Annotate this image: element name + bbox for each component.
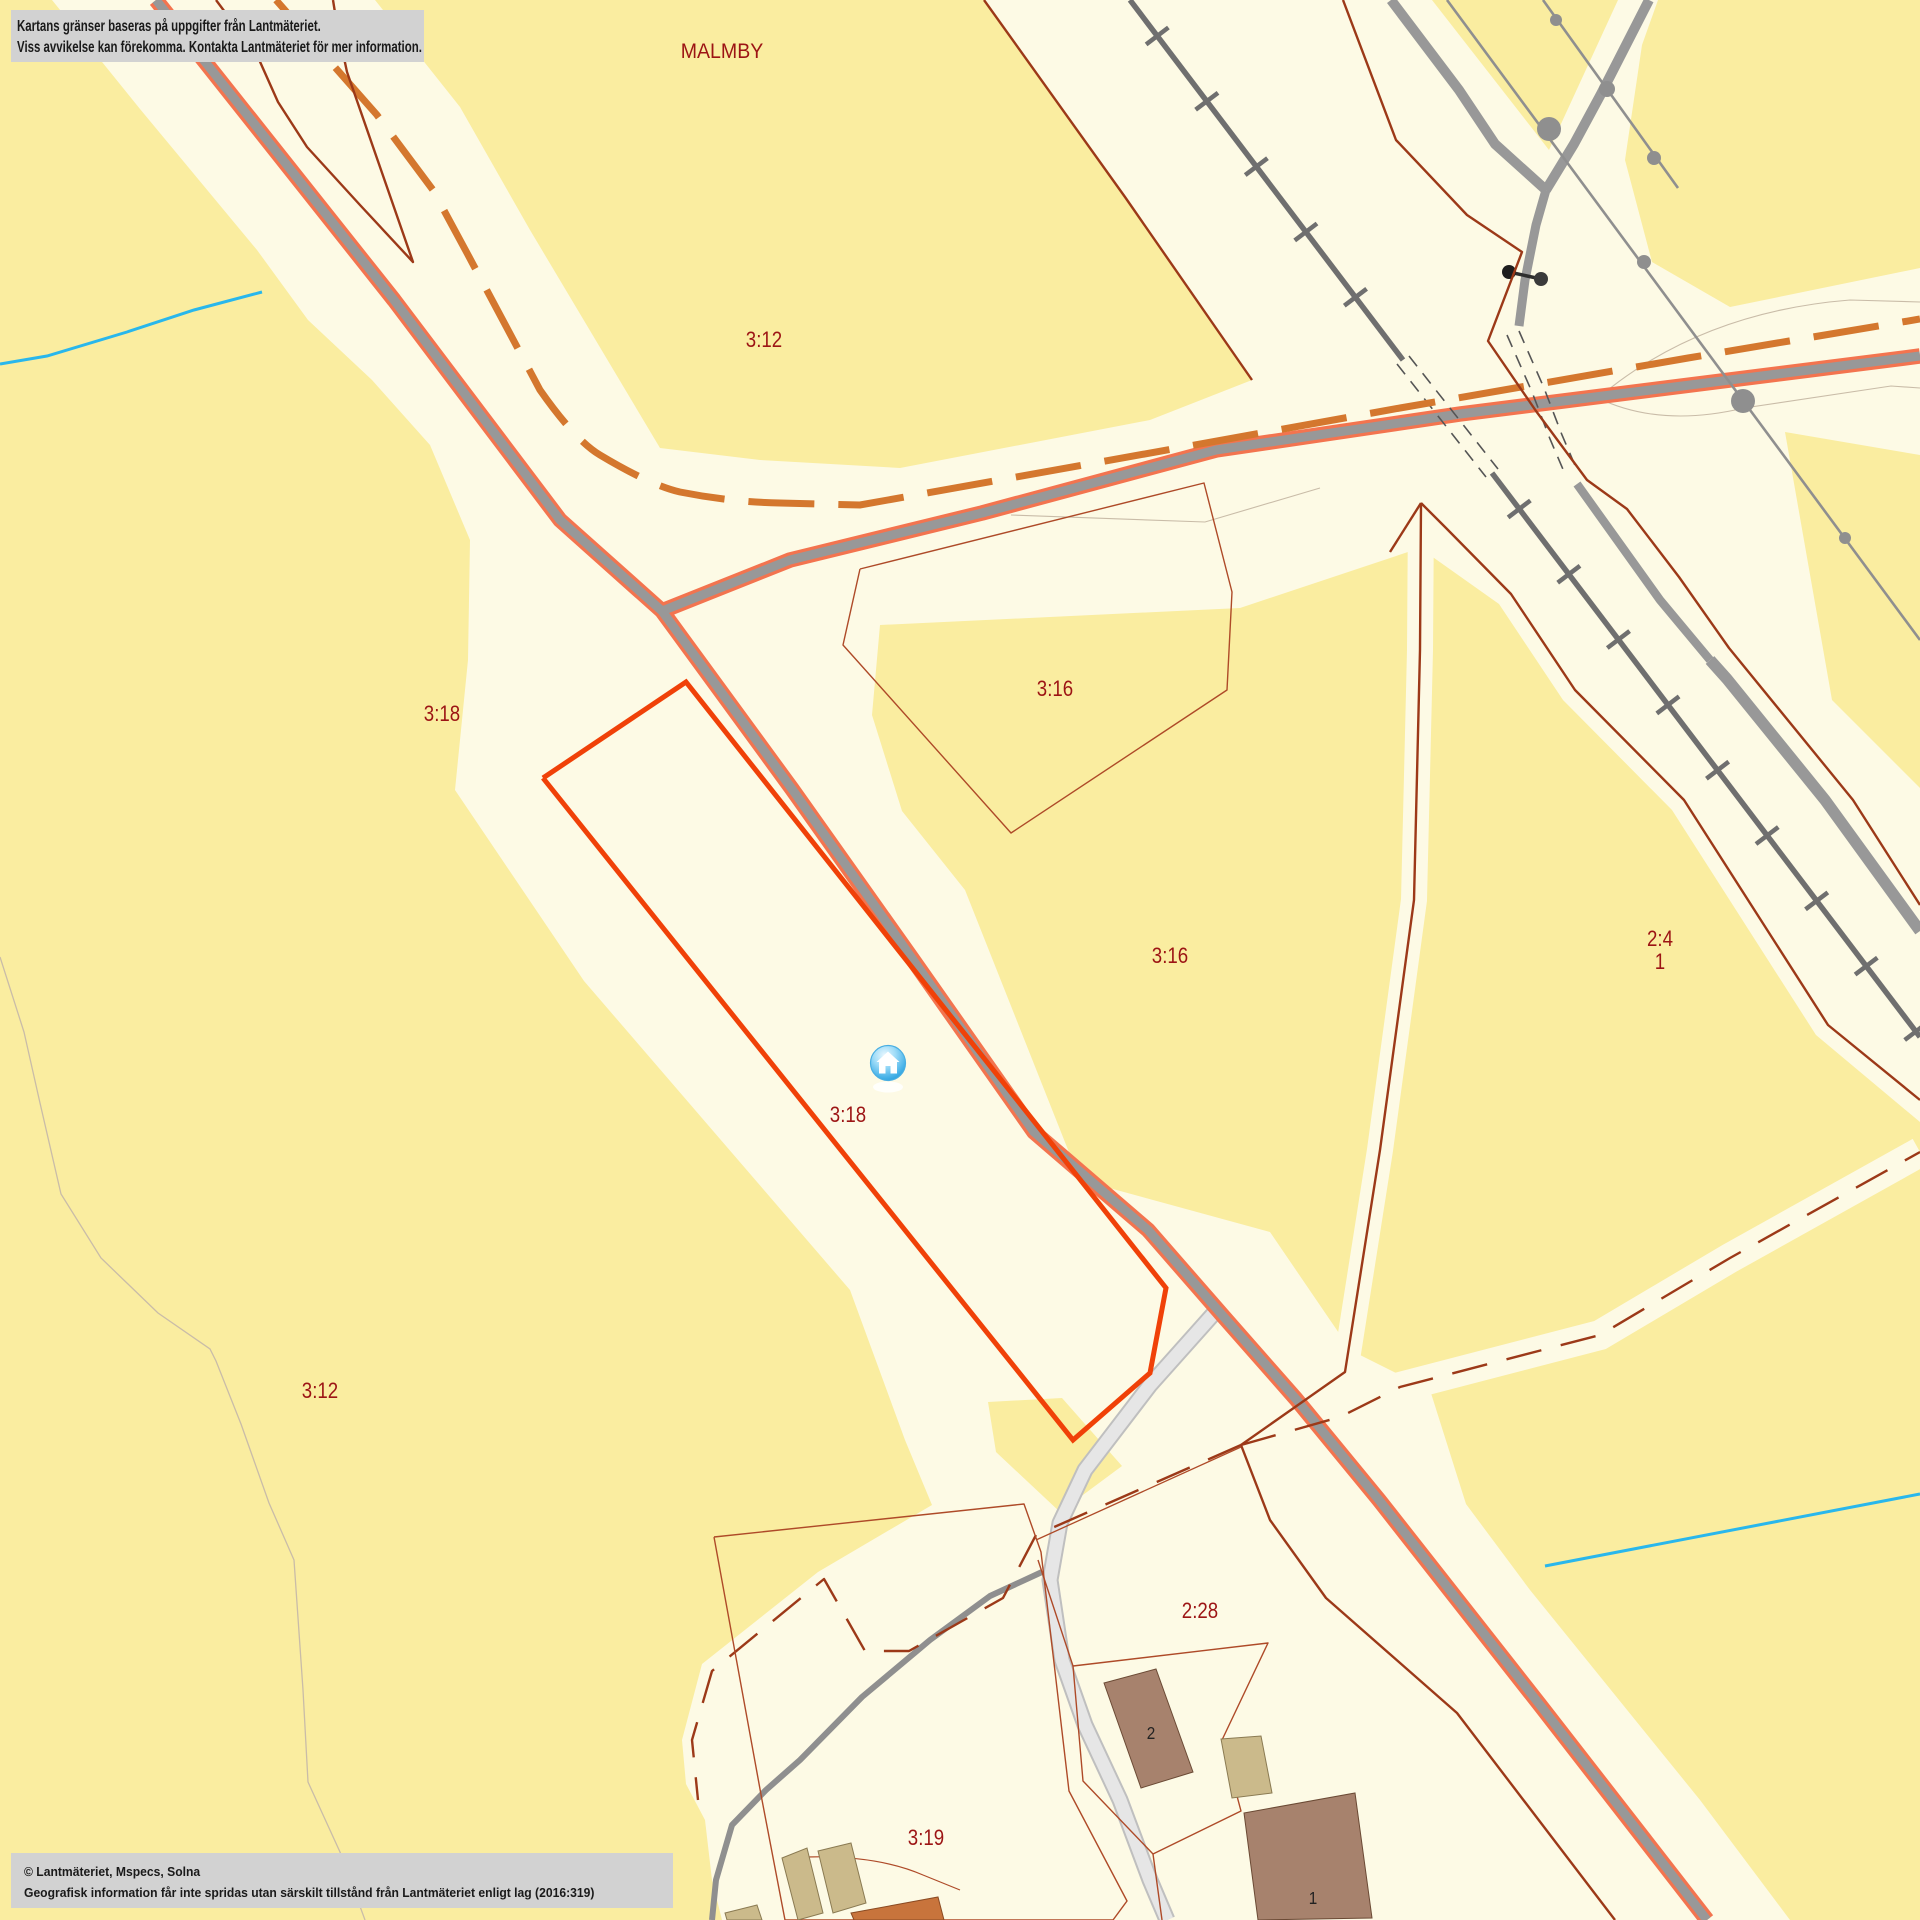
svg-text:2: 2	[1147, 1723, 1156, 1743]
svg-text:3:18: 3:18	[424, 703, 460, 727]
svg-text:© Lantmäteriet, Mspecs, Solna: © Lantmäteriet, Mspecs, Solna	[24, 1865, 201, 1880]
svg-text:3:18: 3:18	[830, 1104, 866, 1128]
svg-text:3:19: 3:19	[908, 1827, 944, 1851]
svg-text:2:4: 2:4	[1647, 928, 1673, 952]
svg-text:3:12: 3:12	[302, 1380, 338, 1404]
svg-text:3:12: 3:12	[746, 329, 782, 353]
svg-text:1: 1	[1655, 951, 1665, 975]
svg-text:2:28: 2:28	[1182, 1600, 1218, 1624]
svg-text:3:16: 3:16	[1152, 945, 1188, 969]
svg-text:Viss avvikelse kan förekomma.: Viss avvikelse kan förekomma. Kontakta L…	[17, 38, 422, 55]
svg-text:MALMBY: MALMBY	[681, 39, 764, 63]
svg-text:1: 1	[1309, 1888, 1318, 1908]
svg-text:Kartans gränser baseras på upp: Kartans gränser baseras på uppgifter frå…	[17, 17, 321, 34]
svg-text:Geografisk information får int: Geografisk information får inte spridas …	[24, 1886, 594, 1901]
svg-text:3:16: 3:16	[1037, 678, 1073, 702]
